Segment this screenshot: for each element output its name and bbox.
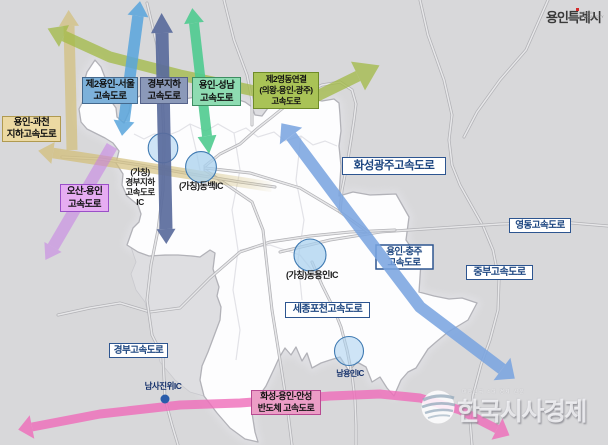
svg-text:용인-충주: 용인-충주 xyxy=(386,246,422,258)
